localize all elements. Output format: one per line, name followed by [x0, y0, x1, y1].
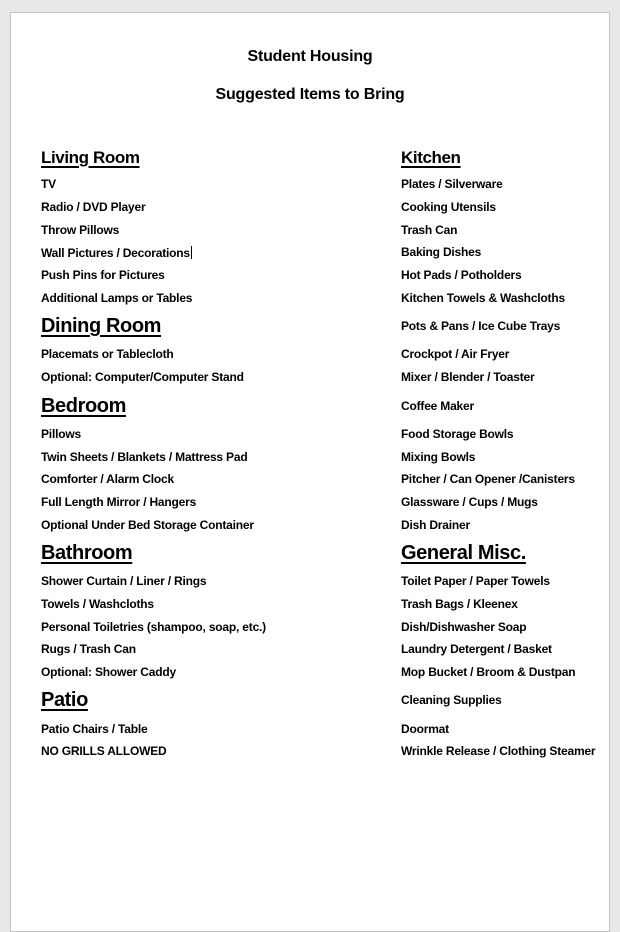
- table-row: Push Pins for Pictures Hot Pads / Pothol…: [41, 264, 599, 287]
- table-row: Additional Lamps or Tables Kitchen Towel…: [41, 286, 599, 309]
- list-item: Radio / DVD Player: [41, 201, 401, 213]
- list-item-label: Wall Pictures / Decorations: [41, 246, 190, 260]
- list-item: Pots & Pans / Ice Cube Trays: [401, 320, 599, 332]
- table-row: Bathroom General Misc.: [41, 536, 599, 570]
- list-item: Towels / Washcloths: [41, 598, 401, 610]
- table-row: Placemats or Tablecloth Crockpot / Air F…: [41, 343, 599, 366]
- list-item: Plates / Silverware: [401, 178, 599, 190]
- list-item: Dish/Dishwasher Soap: [401, 621, 599, 633]
- heading-bathroom: Bathroom: [41, 543, 401, 563]
- list-item: Trash Can: [401, 224, 599, 236]
- list-item: Dish Drainer: [401, 519, 599, 531]
- list-item: NO GRILLS ALLOWED: [41, 745, 401, 757]
- list-item: Additional Lamps or Tables: [41, 292, 401, 304]
- list-item: Throw Pillows: [41, 224, 401, 236]
- list-item: Comforter / Alarm Clock: [41, 473, 401, 485]
- table-row: TV Plates / Silverware: [41, 173, 599, 196]
- heading-bedroom: Bedroom: [41, 396, 401, 416]
- document-title-block: Student Housing Suggested Items to Bring: [11, 47, 609, 105]
- list-item: Food Storage Bowls: [401, 428, 599, 440]
- list-item: Cleaning Supplies: [401, 694, 599, 706]
- list-item: Kitchen Towels & Washcloths: [401, 292, 599, 304]
- text-cursor-caret: [191, 246, 193, 259]
- list-item: Twin Sheets / Blankets / Mattress Pad: [41, 451, 401, 463]
- list-item: Wall Pictures / Decorations: [41, 246, 401, 259]
- list-item: Wrinkle Release / Clothing Steamer: [401, 745, 599, 757]
- list-item: Shower Curtain / Liner / Rings: [41, 575, 401, 587]
- document-title-line-2: Suggested Items to Bring: [11, 85, 609, 105]
- list-item: Mixing Bowls: [401, 451, 599, 463]
- list-item: Optional: Computer/Computer Stand: [41, 371, 401, 383]
- table-row: Radio / DVD Player Cooking Utensils: [41, 196, 599, 219]
- heading-dining-room: Dining Room: [41, 316, 401, 336]
- document-title-line-1: Student Housing: [11, 47, 609, 67]
- table-row: Towels / Washcloths Trash Bags / Kleenex: [41, 593, 599, 616]
- heading-living-room: Living Room: [41, 149, 401, 166]
- table-row: Optional Under Bed Storage Container Dis…: [41, 513, 599, 536]
- list-item: Hot Pads / Potholders: [401, 269, 599, 281]
- table-row: Rugs / Trash Can Laundry Detergent / Bas…: [41, 638, 599, 661]
- list-item: Optional Under Bed Storage Container: [41, 519, 401, 531]
- list-item: Optional: Shower Caddy: [41, 666, 401, 678]
- table-row: Personal Toiletries (shampoo, soap, etc.…: [41, 615, 599, 638]
- table-row: Living Room Kitchen: [41, 141, 599, 173]
- table-row: Shower Curtain / Liner / Rings Toilet Pa…: [41, 570, 599, 593]
- heading-patio: Patio: [41, 690, 401, 710]
- list-item: TV: [41, 178, 401, 190]
- list-item: Toilet Paper / Paper Towels: [401, 575, 599, 587]
- list-item: Doormat: [401, 723, 599, 735]
- list-item: Crockpot / Air Fryer: [401, 348, 599, 360]
- list-item: Rugs / Trash Can: [41, 643, 401, 655]
- table-row: Throw Pillows Trash Can: [41, 218, 599, 241]
- document-page[interactable]: Student Housing Suggested Items to Bring…: [10, 12, 610, 932]
- list-item: Baking Dishes: [401, 246, 599, 258]
- list-item: Mixer / Blender / Toaster: [401, 371, 599, 383]
- table-row: Optional: Shower Caddy Mop Bucket / Broo…: [41, 661, 599, 684]
- table-row: Patio Cleaning Supplies: [41, 683, 599, 717]
- list-item: Placemats or Tablecloth: [41, 348, 401, 360]
- list-item: Pitcher / Can Opener /Canisters: [401, 473, 599, 485]
- table-row: Comforter / Alarm Clock Pitcher / Can Op…: [41, 468, 599, 491]
- list-item: Trash Bags / Kleenex: [401, 598, 599, 610]
- list-item: Patio Chairs / Table: [41, 723, 401, 735]
- document-canvas: { "title": { "line1": "Student Housing",…: [0, 0, 620, 798]
- table-row: NO GRILLS ALLOWED Wrinkle Release / Clot…: [41, 740, 599, 763]
- table-row: Patio Chairs / Table Doormat: [41, 717, 599, 740]
- table-row: Full Length Mirror / Hangers Glassware /…: [41, 491, 599, 514]
- list-item: Laundry Detergent / Basket: [401, 643, 599, 655]
- list-item: Personal Toiletries (shampoo, soap, etc.…: [41, 621, 401, 633]
- list-item: Full Length Mirror / Hangers: [41, 496, 401, 508]
- table-row: Dining Room Pots & Pans / Ice Cube Trays: [41, 309, 599, 343]
- table-row: Optional: Computer/Computer Stand Mixer …: [41, 366, 599, 389]
- table-row: Pillows Food Storage Bowls: [41, 423, 599, 446]
- heading-kitchen: Kitchen: [401, 149, 599, 166]
- list-item: Cooking Utensils: [401, 201, 599, 213]
- list-item: Pillows: [41, 428, 401, 440]
- table-row: Wall Pictures / Decorations Baking Dishe…: [41, 241, 599, 264]
- list-item: Glassware / Cups / Mugs: [401, 496, 599, 508]
- two-column-list: Living Room Kitchen TV Plates / Silverwa…: [11, 141, 609, 763]
- heading-general-misc: General Misc.: [401, 543, 599, 563]
- table-row: Twin Sheets / Blankets / Mattress Pad Mi…: [41, 445, 599, 468]
- table-row: Bedroom Coffee Maker: [41, 389, 599, 423]
- list-item: Coffee Maker: [401, 400, 599, 412]
- list-item: Push Pins for Pictures: [41, 269, 401, 281]
- list-item: Mop Bucket / Broom & Dustpan: [401, 666, 599, 678]
